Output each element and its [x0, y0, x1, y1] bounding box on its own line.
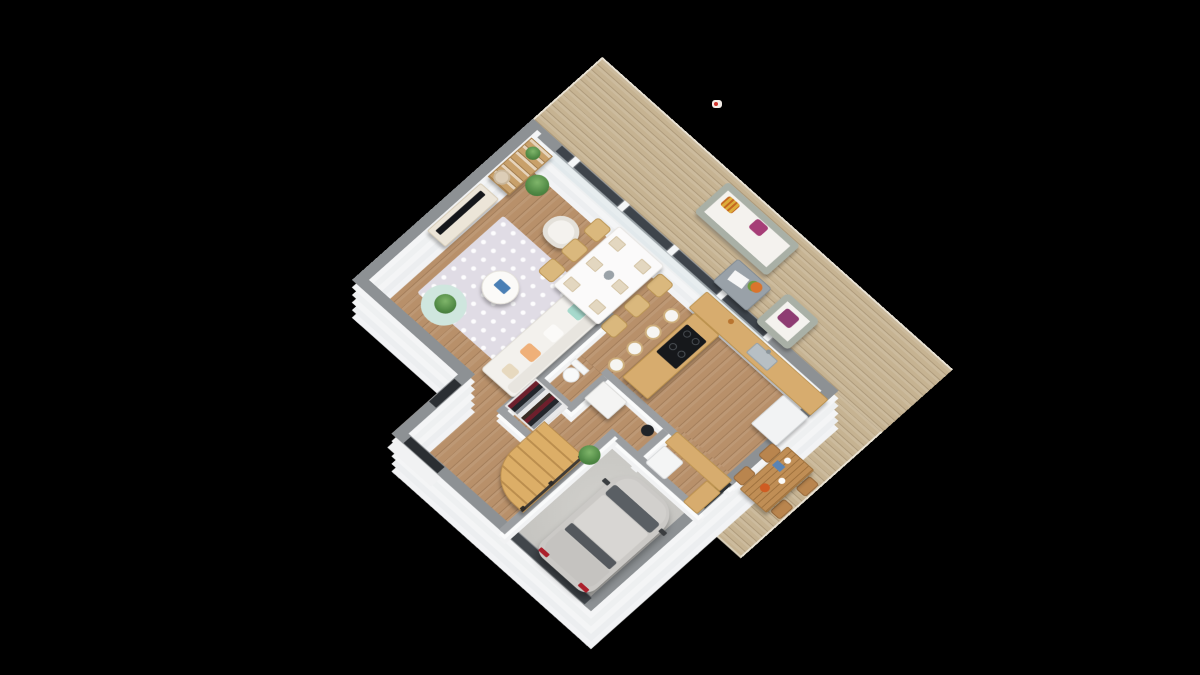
render-viewport[interactable] — [0, 0, 1200, 675]
floor-plan-3d[interactable] — [277, 57, 953, 659]
render-artifact-dot — [712, 100, 722, 108]
artifact-red-dot — [714, 102, 718, 106]
